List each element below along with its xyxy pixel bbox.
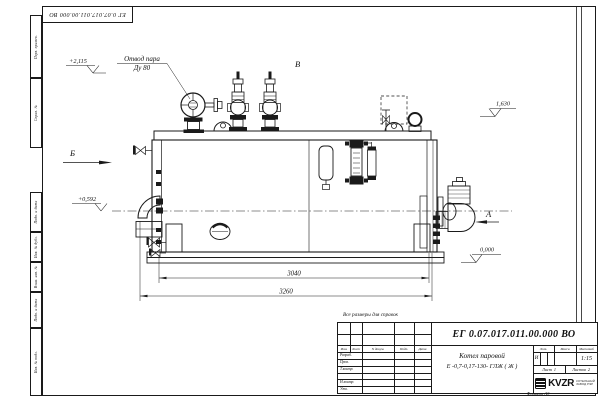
tb-logo: KVZR КОТЕЛЬНЫЙ ЗАВОД РЭР [533,373,597,393]
elevation-1630-label: 1,630 [496,101,511,108]
tb-role-developed: Разраб. [340,352,361,359]
elevation-0592: +0,592 [72,196,107,211]
water-level-gauges [319,140,376,190]
format-label: Формат А3 [480,391,596,396]
tb-product-name-line2: Е -0,7-0,17-130- ГЛЖ ( Ж ) [447,363,518,370]
manhole [210,224,230,240]
tb-header-podp: Подп. [394,345,414,352]
elevation-2115: +2,115 [66,58,106,73]
kvzr-logo-text: KVZR [548,378,574,389]
tb-role-approved: Утв. [340,386,361,393]
lifting-ring [409,113,422,132]
tb-scale-value: 1:15 [576,352,597,365]
steam-outlet-valve [181,93,222,133]
tb-sheet-value: 1 [554,367,556,372]
view-v-label: В [295,59,300,69]
tb-header-mass: Масса [554,345,576,352]
elevation-2115-label: +2,115 [69,58,87,65]
drawing-sheet: Перв. примен. Справ. № Подп. и дата Инв.… [0,0,600,400]
tb-product-name: Котел паровой Е -0,7-0,17-130- ГЛЖ ( Ж ) [431,345,533,393]
tb-header-dokum: N докум. [362,345,394,352]
tb-sheets-value: 2 [588,367,590,372]
view-arrow-b: Б [63,148,112,164]
front-vent-valve [133,146,153,155]
tb-sheet-cell: Лист 1 [533,365,565,373]
base-skid [147,224,444,263]
kvzr-logo-icon [535,378,546,389]
vertical-pipe [577,6,582,322]
tb-header-scale: Масштаб [576,345,597,352]
dimension-3260-label: 3260 [278,289,293,296]
burner-assembly [436,178,475,232]
elevation-0592-label: +0,592 [78,196,96,203]
tb-product-name-line1: Котел паровой [459,352,505,360]
elevation-1630: 1,630 [480,101,516,117]
elevation-0000: 0,000 [461,247,501,263]
dimension-3040-label: 3040 [286,271,301,278]
tb-lit-value: И [533,352,540,365]
tb-header-izm: Изм. [338,345,350,352]
tb-sheet-label: Лист [542,367,552,372]
reference-note: Все размеры для справок [343,312,398,318]
small-top-valve [382,110,390,131]
steam-outlet-label-line2: Ду 80 [133,64,151,72]
view-b-label: Б [69,148,75,158]
steam-outlet-label: Отвод пара Ду 80 [117,55,190,99]
tb-header-lit: Лит. [533,345,554,352]
title-block: Изм. Лист N докум. Подп. Дата Разраб. Пр… [337,322,598,394]
view-a-label: А [485,209,492,219]
tb-document-number: ЕГ 0.07.017.011.00.000 ВО [431,323,597,345]
view-mark-v: В [295,59,300,69]
safety-valve-2 [260,72,281,132]
view-arrow-a: А [475,209,499,224]
steam-outlet-label-line1: Отвод пара [124,55,160,63]
boiler-shell [152,131,437,252]
tb-sheets-cell: Листов 2 [565,365,597,373]
tb-role-checked: Пров. [340,359,361,366]
tb-header-data: Дата [414,345,431,352]
tb-sheets-label: Листов [572,367,586,372]
tb-role-ncontrol: Н.контр. [340,379,361,386]
safety-valve-1 [228,72,249,132]
elevation-0000-label: 0,000 [480,247,495,254]
dimension-3260: 3260 [140,221,432,301]
tb-role-tcontrol: Т.контр. [340,366,361,373]
tb-header-list: Лист [350,345,362,352]
kvzr-logo-subtext: КОТЕЛЬНЫЙ ЗАВОД РЭР [576,380,595,387]
leader-line [167,64,190,100]
